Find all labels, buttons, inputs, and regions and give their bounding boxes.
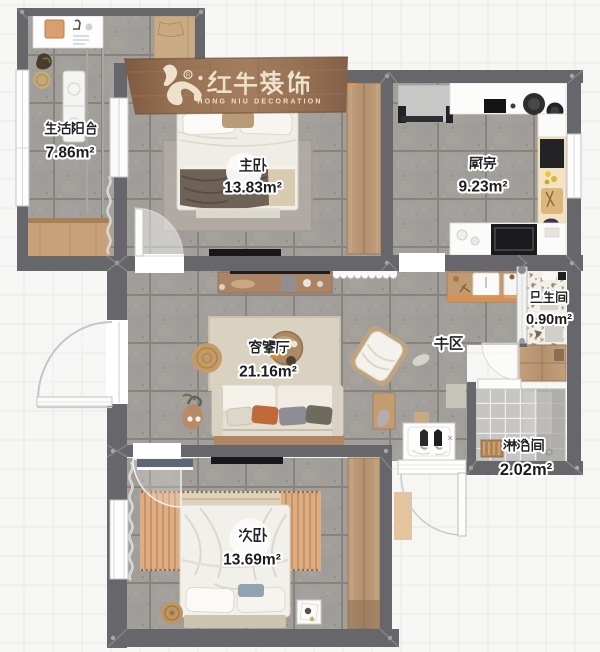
- svg-text:13.83m²: 13.83m²: [224, 180, 282, 197]
- svg-text:21.16m²: 21.16m²: [239, 364, 297, 381]
- svg-text:R: R: [186, 73, 191, 79]
- svg-text:HONG NIU DECORATION: HONG NIU DECORATION: [197, 99, 322, 106]
- svg-text:9.23m²: 9.23m²: [458, 179, 507, 196]
- svg-text:13.69m²: 13.69m²: [223, 552, 281, 569]
- svg-text:7.86m²: 7.86m²: [45, 145, 94, 162]
- svg-text:2.02m²: 2.02m²: [500, 461, 553, 479]
- svg-text:0.90m²: 0.90m²: [526, 312, 572, 328]
